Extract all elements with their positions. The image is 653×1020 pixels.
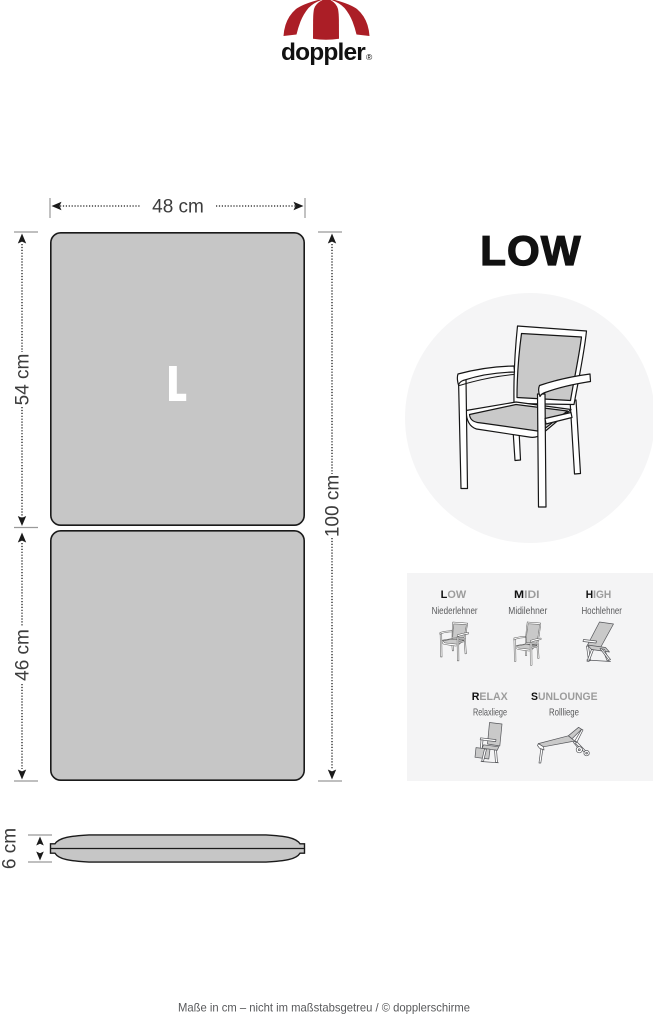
svg-text:Maße in cm – nicht im maßstabs: Maße in cm – nicht im maßstabsgetreu / ©… [178, 1001, 470, 1015]
svg-text:RELAX: RELAX [472, 691, 509, 703]
svg-text:LOW: LOW [480, 227, 582, 274]
svg-text:Relaxliege: Relaxliege [473, 707, 507, 719]
svg-text:®: ® [366, 52, 373, 62]
svg-text:Niederlehner: Niederlehner [432, 605, 478, 617]
svg-text:48 cm: 48 cm [152, 197, 204, 218]
svg-text:54 cm: 54 cm [13, 354, 34, 406]
svg-text:HIGH: HIGH [586, 589, 612, 601]
svg-text:46 cm: 46 cm [13, 629, 34, 681]
svg-text:6 cm: 6 cm [0, 828, 21, 869]
svg-text:Rollliege: Rollliege [549, 707, 579, 719]
svg-text:doppler: doppler [281, 39, 365, 66]
svg-text:LOW: LOW [441, 589, 467, 601]
svg-text:SUNLOUNGE: SUNLOUNGE [531, 691, 598, 703]
svg-text:100 cm: 100 cm [323, 475, 344, 537]
svg-text:Hochlehner: Hochlehner [581, 605, 622, 617]
svg-text:Midilehner: Midilehner [508, 605, 547, 617]
svg-text:MIDI: MIDI [514, 589, 540, 601]
